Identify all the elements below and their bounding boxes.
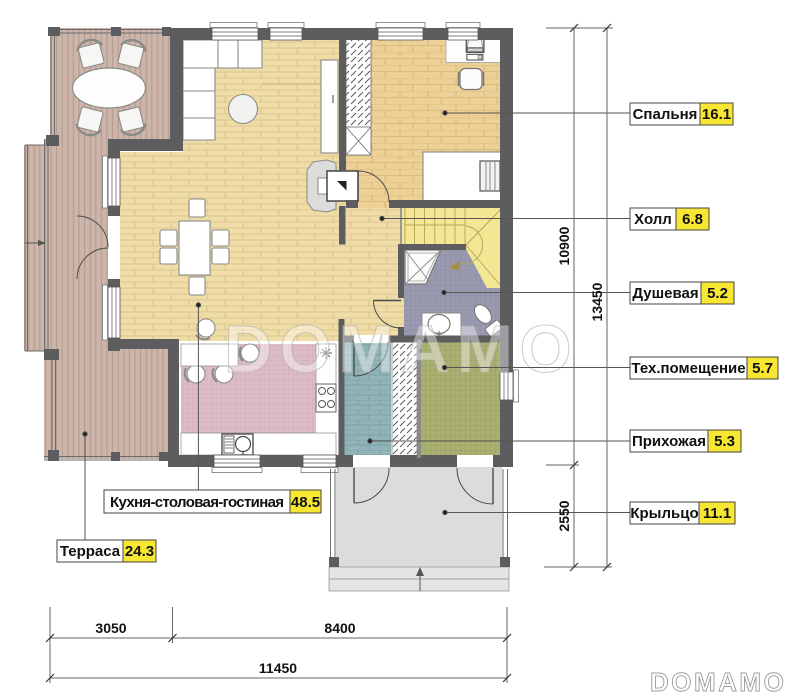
svg-text:5.3: 5.3 <box>714 433 735 450</box>
svg-text:24.3: 24.3 <box>125 543 154 560</box>
svg-text:Тех.помещение: Тех.помещение <box>631 360 745 377</box>
svg-text:5.2: 5.2 <box>707 285 728 302</box>
svg-text:13450: 13450 <box>589 282 605 321</box>
svg-text:8400: 8400 <box>324 620 355 636</box>
svg-text:Терраса: Терраса <box>60 543 121 560</box>
svg-text:16.1: 16.1 <box>702 106 731 123</box>
svg-text:11.1: 11.1 <box>703 505 731 522</box>
svg-text:5.7: 5.7 <box>752 360 773 377</box>
svg-text:48.5: 48.5 <box>291 494 320 511</box>
svg-text:Кухня-столовая-гостиная: Кухня-столовая-гостиная <box>110 494 284 511</box>
svg-text:DOMAMO: DOMAMO <box>650 667 786 697</box>
svg-text:3050: 3050 <box>95 620 126 636</box>
svg-text:10900: 10900 <box>556 226 572 265</box>
svg-text:Крыльцо: Крыльцо <box>630 505 698 522</box>
svg-text:DOMAMO: DOMAMO <box>224 312 579 387</box>
svg-text:Душевая: Душевая <box>632 285 698 302</box>
svg-text:11450: 11450 <box>259 660 297 676</box>
svg-text:Прихожая: Прихожая <box>632 433 706 450</box>
svg-text:2550: 2550 <box>556 500 572 531</box>
svg-text:6.8: 6.8 <box>682 211 703 228</box>
svg-text:Спальня: Спальня <box>633 106 698 123</box>
svg-text:Холл: Холл <box>634 211 672 228</box>
